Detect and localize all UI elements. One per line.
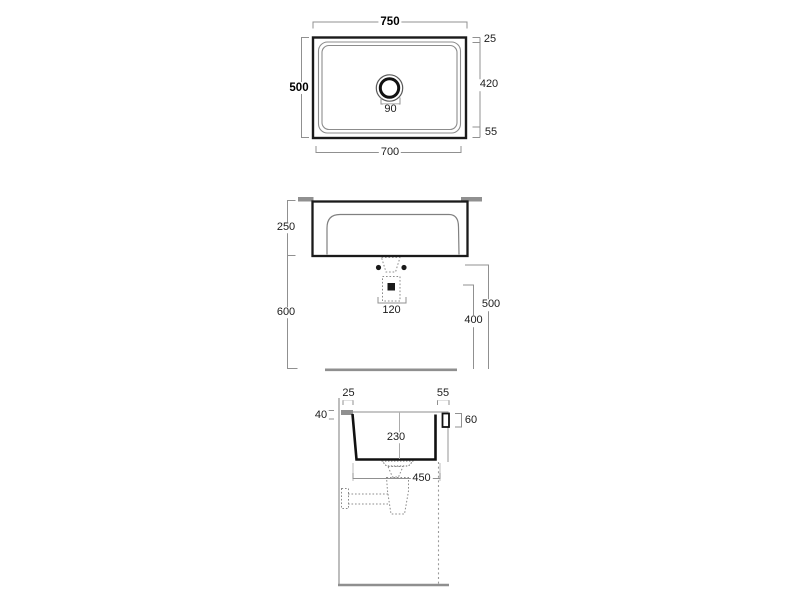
front-elevation-view	[288, 197, 489, 370]
dim-label-body-height: 250	[275, 222, 297, 234]
dim-label-drain-diameter: 90	[382, 104, 398, 116]
dim-label-clearance-below: 600	[275, 307, 297, 319]
front-waste-assembly	[382, 258, 401, 302]
dim-label-rim-front: 55	[483, 127, 499, 139]
dim-label-bowl-inner-depth: 230	[385, 432, 407, 444]
dim-label-rim-back: 25	[482, 34, 498, 46]
plan-sink-outline	[313, 38, 466, 139]
dim-label-fixing-height: 500	[480, 299, 502, 311]
front-sink-body	[313, 202, 468, 257]
dim-label-drain-height: 400	[462, 315, 484, 327]
dim-label-apron-height: 60	[463, 415, 479, 427]
side-section-view	[328, 398, 462, 585]
wall-bracket-left	[298, 197, 314, 202]
plan-view	[302, 22, 481, 153]
dim-label-bowl-base-width: 450	[410, 473, 432, 485]
dim-label-bowl-depth: 420	[478, 79, 500, 91]
waste-outlet-square-icon	[388, 283, 396, 291]
fixing-bolt-left-icon	[376, 265, 381, 270]
dim-label-back-offset: 25	[340, 388, 356, 400]
section-wall-bracket	[341, 410, 353, 415]
technical-drawing-page: 750 500 25 420 55 700 90 250 600 120 500…	[0, 0, 800, 600]
dim-label-front-rim: 55	[435, 388, 451, 400]
dim-label-overall-width: 750	[378, 16, 401, 28]
dim-line-400	[463, 285, 474, 369]
section-apron-piece	[443, 414, 450, 428]
dim-label-waste-width: 120	[380, 305, 402, 317]
drawing-canvas	[0, 0, 800, 600]
dim-label-bracket-height: 40	[313, 410, 329, 422]
dim-label-bowl-width: 700	[379, 147, 401, 159]
section-trap-assembly	[342, 467, 409, 515]
section-drain-boss	[382, 461, 413, 466]
fixing-bolt-right-icon	[401, 265, 406, 270]
dim-label-overall-depth: 500	[287, 81, 310, 93]
